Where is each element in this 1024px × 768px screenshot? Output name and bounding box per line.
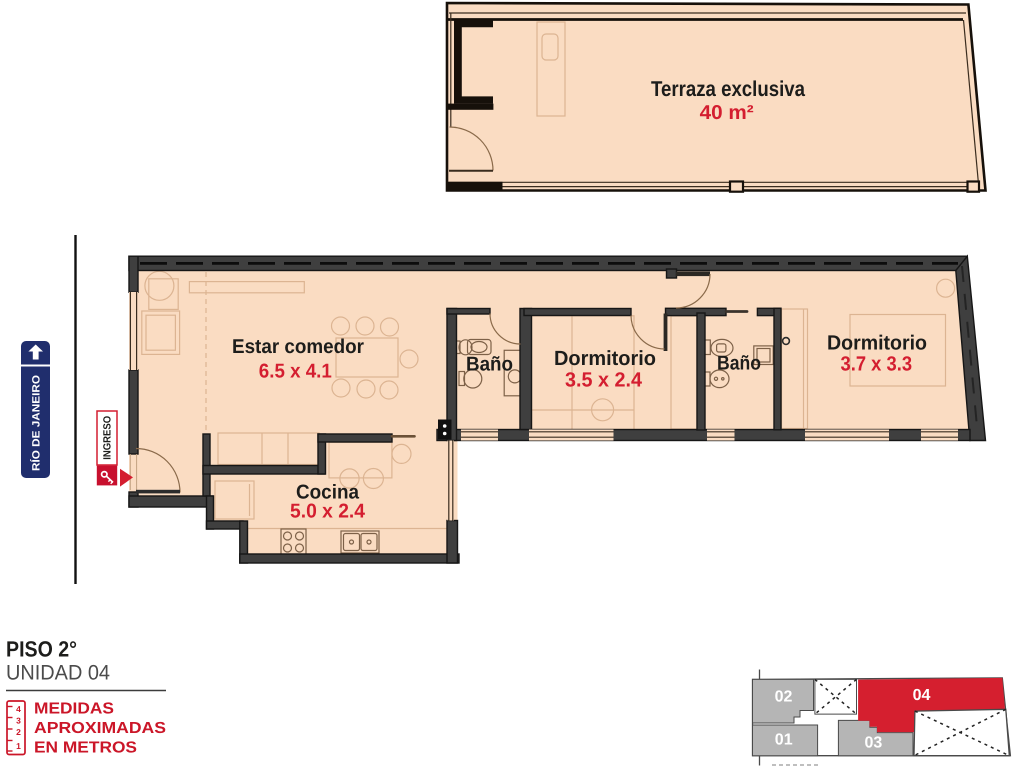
svg-text:Estar comedor: Estar comedor (232, 336, 364, 358)
svg-text:3.5 x 2.4: 3.5 x 2.4 (565, 369, 643, 392)
svg-text:2: 2 (16, 727, 21, 737)
svg-text:Dormitorio: Dormitorio (554, 347, 656, 370)
svg-text:Baño: Baño (717, 353, 761, 375)
svg-text:02: 02 (775, 689, 793, 706)
svg-text:5.0 x 2.4: 5.0 x 2.4 (290, 501, 366, 523)
svg-text:Terraza exclusiva: Terraza exclusiva (651, 77, 806, 101)
svg-text:Baño: Baño (466, 354, 513, 376)
svg-text:40 m²: 40 m² (700, 102, 754, 124)
svg-text:04: 04 (913, 687, 931, 704)
svg-text:INGRESO: INGRESO (102, 416, 114, 460)
svg-text:UNIDAD 04: UNIDAD 04 (6, 662, 110, 685)
svg-text:6.5 x 4.1: 6.5 x 4.1 (259, 361, 332, 383)
svg-text:4: 4 (16, 704, 21, 714)
svg-text:PISO 2°: PISO 2° (6, 637, 77, 662)
svg-text:3: 3 (16, 716, 21, 726)
svg-text:3.7 x 3.3: 3.7 x 3.3 (841, 353, 913, 376)
svg-text:03: 03 (865, 735, 883, 752)
svg-text:01: 01 (775, 732, 793, 749)
svg-text:RÍO DE JANEIRO: RÍO DE JANEIRO (29, 375, 42, 471)
svg-text:1: 1 (16, 741, 21, 751)
svg-text:Dormitorio: Dormitorio (827, 332, 927, 355)
svg-text:EN METROS: EN METROS (34, 740, 137, 757)
svg-text:MEDIDAS: MEDIDAS (34, 701, 114, 718)
svg-text:APROXIMADAS: APROXIMADAS (34, 720, 166, 737)
